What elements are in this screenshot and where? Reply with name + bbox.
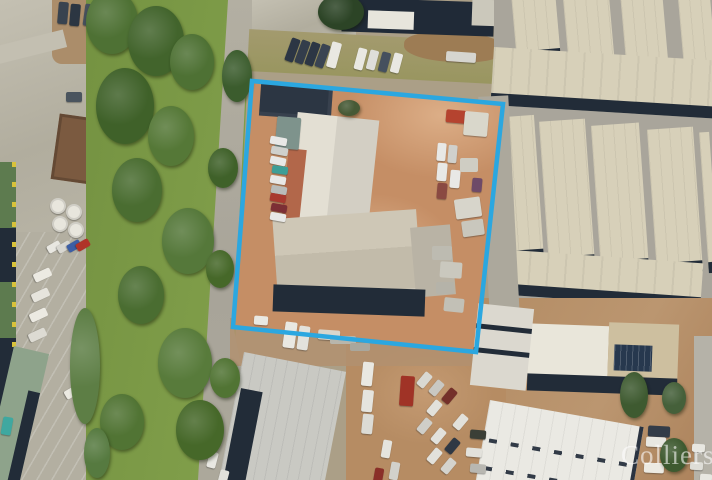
car xyxy=(452,413,469,431)
tree xyxy=(662,382,686,414)
junk xyxy=(439,261,462,278)
tree xyxy=(84,428,110,478)
car xyxy=(470,429,487,439)
tree xyxy=(96,68,154,144)
truck xyxy=(361,361,374,386)
tree xyxy=(208,148,238,188)
truck xyxy=(361,389,374,412)
car xyxy=(270,146,288,157)
colliers-watermark-logo: Colliers xyxy=(621,440,712,471)
truck xyxy=(57,2,69,25)
tree xyxy=(70,308,100,424)
shed xyxy=(461,219,485,238)
junk xyxy=(436,282,454,294)
aerial-photo: Colliers xyxy=(0,0,712,480)
truck xyxy=(446,51,477,63)
car xyxy=(426,399,443,417)
junk xyxy=(432,246,452,260)
car xyxy=(381,439,393,458)
truck xyxy=(390,52,404,74)
car xyxy=(466,447,483,457)
car xyxy=(30,287,50,303)
car xyxy=(436,183,447,200)
tree xyxy=(338,100,360,116)
car xyxy=(447,145,458,164)
car xyxy=(416,417,433,435)
car xyxy=(32,267,52,283)
car xyxy=(269,175,286,186)
tree xyxy=(318,0,364,30)
car xyxy=(471,178,482,193)
tree xyxy=(210,358,240,398)
car xyxy=(430,427,447,445)
truck xyxy=(361,413,374,434)
car xyxy=(470,463,487,473)
car xyxy=(389,461,401,480)
car xyxy=(444,437,461,455)
scene-items-layer xyxy=(0,0,712,480)
truck xyxy=(69,4,81,27)
truck xyxy=(66,92,82,102)
car xyxy=(436,143,447,162)
truck xyxy=(648,425,671,437)
tree xyxy=(176,400,224,460)
canopy xyxy=(463,111,489,137)
tree xyxy=(170,34,214,90)
tank xyxy=(68,222,84,238)
junk xyxy=(443,297,464,313)
car xyxy=(373,467,385,480)
car xyxy=(254,316,269,326)
shed xyxy=(454,196,483,219)
car xyxy=(440,457,457,475)
tree xyxy=(620,372,648,418)
car xyxy=(449,170,461,189)
tree xyxy=(118,266,164,324)
tank xyxy=(52,216,68,232)
car xyxy=(217,469,229,480)
truck xyxy=(282,321,298,348)
tank xyxy=(50,198,66,214)
car xyxy=(436,163,448,182)
junk xyxy=(460,158,478,172)
tree xyxy=(206,250,234,288)
tree xyxy=(222,50,252,102)
tree xyxy=(148,106,194,166)
car xyxy=(27,327,47,343)
junk xyxy=(350,343,370,351)
truck xyxy=(1,416,14,435)
truck xyxy=(296,325,310,350)
car xyxy=(700,474,712,480)
car xyxy=(272,165,289,175)
tree xyxy=(112,158,162,222)
car xyxy=(269,212,286,223)
truck xyxy=(399,376,415,407)
tree xyxy=(158,328,212,398)
car xyxy=(269,193,286,204)
car xyxy=(441,387,458,405)
tank xyxy=(66,204,82,220)
car xyxy=(428,379,445,397)
car xyxy=(28,307,48,323)
car xyxy=(426,447,443,465)
